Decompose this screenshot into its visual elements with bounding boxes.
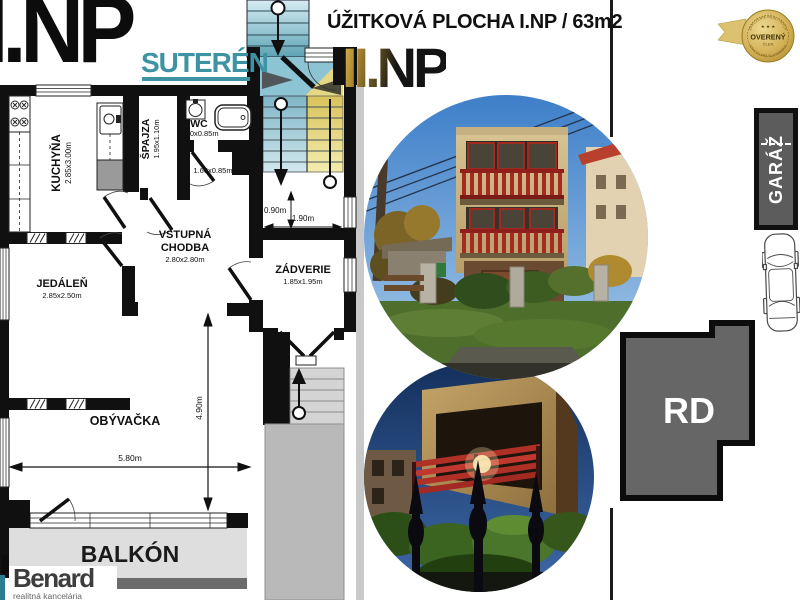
floor-label-right: II.NP [342, 40, 446, 96]
logo-name: Benard [13, 566, 117, 591]
washbasin-icon [186, 99, 205, 119]
house-photo-front [364, 95, 648, 379]
logo-bar [2, 555, 9, 573]
floor-plan: KUCHYŇA 2.85x3.00m ŠPAJZA 1.95x1.10m WC … [0, 0, 364, 600]
badge-subtitle: ČLEN [763, 42, 774, 47]
agency-logo: Benard realitná kancelária [0, 555, 120, 600]
garage-label: GARÁŽ [766, 135, 787, 204]
logo-teal-square [0, 575, 5, 600]
kitchen-counter [9, 132, 30, 232]
room-dim-zadverie: 1.85x1.95m [283, 277, 322, 286]
room-label-zadverie: ZÁDVERIE [275, 263, 331, 276]
room-label-spajza: ŠPAJZA [139, 118, 152, 159]
neighbor-building [364, 450, 416, 520]
stove-icon [9, 96, 30, 132]
divider-line-bottom [610, 508, 613, 600]
badge-title: OVERENÝ [750, 33, 785, 42]
room-label-jedalen: JEDÁLEŇ [36, 277, 87, 290]
garage-box: GARÁŽ [754, 108, 798, 230]
sink-icon [97, 103, 123, 190]
suteren-label: SUTERÉN [141, 47, 268, 79]
verified-badge: ZDRUŽENIE REALITNÝCH KANCELÁRIÍ SLOVENSK… [712, 5, 800, 69]
room-dim-kuchyna: 2.85x3.00m [64, 142, 73, 184]
dim-width-label: 5.80m [118, 453, 142, 463]
room-label-vstupna-2: CHODBA [161, 242, 209, 254]
car-icon [762, 232, 800, 334]
nook-dim: 1.60x0.85m [193, 166, 232, 175]
dim-height-label: 4.90m [194, 396, 204, 420]
exterior-strip [356, 85, 364, 600]
staircase-flights [263, 96, 343, 188]
suteren-underline [142, 77, 250, 81]
dim-stairs-label: 1.90m [292, 214, 315, 223]
floor-label-left: I.NP [0, 0, 130, 78]
room-dim-wc: 1.60x0.85m [179, 129, 218, 138]
room-dim-jedalen: 2.85x2.50m [42, 291, 81, 300]
rd-label: RD [663, 390, 715, 431]
house-photo-detail [364, 362, 594, 592]
room-label-kuchyna: KUCHYŇA [50, 134, 63, 192]
dim-landing-label: 0.90m [264, 206, 287, 215]
room-label-obyvacka: OBÝVAČKA [90, 413, 161, 428]
badge-ribbon [718, 19, 746, 45]
badge-stars: ★ ★ ★ [761, 24, 777, 29]
room-dim-vstupna: 2.80x2.80m [165, 255, 204, 264]
radiators [27, 233, 86, 410]
page-title: ÚŽITKOVÁ PLOCHA I.NP / 63m2 [327, 11, 622, 34]
room-label-vstupna-1: VSTUPNÁ [159, 228, 212, 241]
bathtub-icon [215, 105, 251, 130]
rd-house-shape: RD [617, 317, 758, 504]
entrance-stairs [263, 332, 344, 600]
room-dim-spajza: 1.95x1.10m [152, 119, 161, 158]
logo-tagline: realitná kancelária [13, 591, 117, 601]
